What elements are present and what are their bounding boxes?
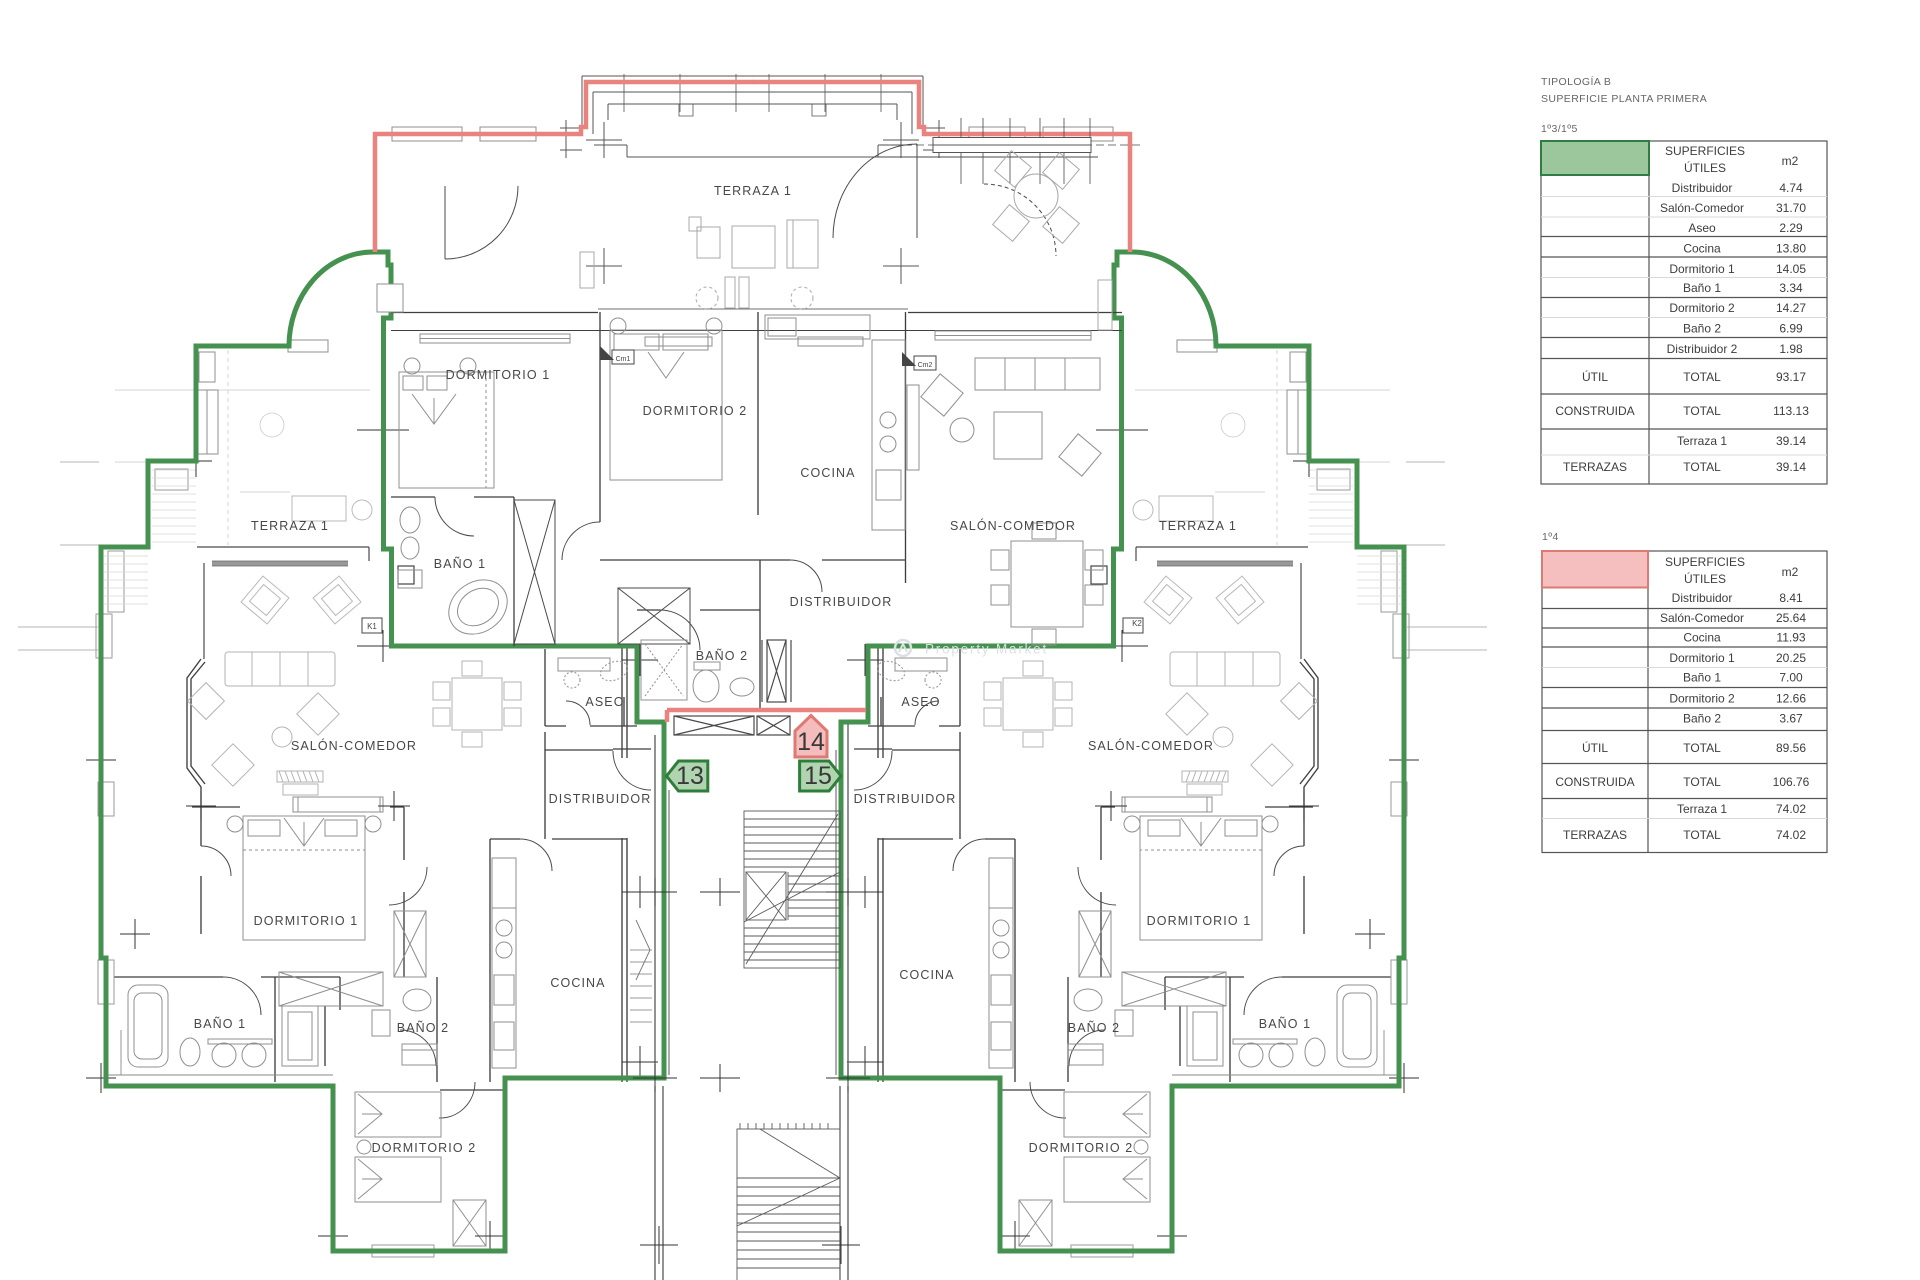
svg-text:DORMITORIO 1: DORMITORIO 1: [254, 914, 359, 928]
svg-text:ASEO: ASEO: [585, 695, 624, 709]
svg-text:SUPERFICIES: SUPERFICIES: [1665, 555, 1745, 569]
svg-text:20.25: 20.25: [1776, 651, 1806, 665]
svg-text:Dormitorio 1: Dormitorio 1: [1669, 262, 1735, 276]
svg-text:Distribuidor: Distribuidor: [1672, 591, 1733, 605]
svg-text:TERRAZA 1: TERRAZA 1: [251, 519, 329, 533]
svg-text:TOTAL: TOTAL: [1683, 460, 1721, 474]
svg-text:Property Market: Property Market: [925, 642, 1048, 657]
svg-text:DORMITORIO 2: DORMITORIO 2: [1029, 1141, 1134, 1155]
svg-text:7.00: 7.00: [1779, 671, 1803, 685]
svg-text:COCINA: COCINA: [800, 466, 855, 480]
svg-text:BAÑO 1: BAÑO 1: [194, 1017, 246, 1031]
svg-text:3.67: 3.67: [1779, 712, 1803, 726]
svg-text:Aseo: Aseo: [1688, 221, 1716, 235]
svg-text:Baño 2: Baño 2: [1683, 712, 1721, 726]
svg-text:DORMITORIO 1: DORMITORIO 1: [446, 368, 551, 382]
svg-text:SALÓN-COMEDOR: SALÓN-COMEDOR: [1088, 738, 1214, 753]
svg-text:SALÓN-COMEDOR: SALÓN-COMEDOR: [950, 518, 1076, 533]
svg-text:3.34: 3.34: [1779, 281, 1803, 295]
svg-text:Cm1: Cm1: [616, 356, 631, 363]
svg-text:DISTRIBUIDOR: DISTRIBUIDOR: [854, 792, 957, 806]
svg-text:TOTAL: TOTAL: [1683, 775, 1721, 789]
svg-text:25.64: 25.64: [1776, 611, 1806, 625]
svg-text:DORMITORIO 1: DORMITORIO 1: [1147, 914, 1252, 928]
svg-text:BAÑO 1: BAÑO 1: [1259, 1017, 1311, 1031]
svg-text:ÚTILES: ÚTILES: [1684, 160, 1726, 175]
svg-text:14.27: 14.27: [1776, 301, 1806, 315]
svg-text:2.29: 2.29: [1779, 221, 1803, 235]
svg-text:1.98: 1.98: [1779, 342, 1803, 356]
svg-text:Distribuidor 2: Distribuidor 2: [1667, 342, 1738, 356]
svg-text:Dormitorio 2: Dormitorio 2: [1669, 301, 1735, 315]
svg-text:CONSTRUIDA: CONSTRUIDA: [1555, 775, 1634, 789]
svg-text:TIPOLOGÍA B: TIPOLOGÍA B: [1541, 75, 1611, 88]
svg-text:Distribuidor: Distribuidor: [1672, 181, 1733, 195]
svg-text:TOTAL: TOTAL: [1683, 370, 1721, 384]
svg-text:TOTAL: TOTAL: [1683, 741, 1721, 755]
svg-text:DISTRIBUIDOR: DISTRIBUIDOR: [549, 792, 652, 806]
svg-text:Baño 2: Baño 2: [1683, 322, 1721, 336]
svg-text:89.56: 89.56: [1776, 741, 1806, 755]
svg-text:106.76: 106.76: [1773, 775, 1810, 789]
svg-text:ÚTILES: ÚTILES: [1684, 571, 1726, 586]
svg-text:SUPERFICIES: SUPERFICIES: [1665, 144, 1745, 158]
svg-text:39.14: 39.14: [1776, 460, 1806, 474]
svg-text:ÚTIL: ÚTIL: [1582, 740, 1608, 755]
svg-text:Salón-Comedor: Salón-Comedor: [1660, 201, 1744, 215]
svg-text:Cocina: Cocina: [1683, 242, 1721, 256]
svg-text:TERRAZA 1: TERRAZA 1: [1159, 519, 1237, 533]
svg-text:m2: m2: [1782, 154, 1799, 168]
svg-text:Baño 1: Baño 1: [1683, 281, 1721, 295]
svg-text:8.41: 8.41: [1779, 591, 1803, 605]
svg-text:1º4: 1º4: [1542, 531, 1559, 543]
svg-text:BAÑO 2: BAÑO 2: [696, 649, 748, 663]
svg-text:Terraza 1: Terraza 1: [1677, 434, 1727, 448]
svg-text:K1: K1: [367, 622, 377, 631]
svg-text:39.14: 39.14: [1776, 434, 1806, 448]
svg-text:Terraza 1: Terraza 1: [1677, 802, 1727, 816]
svg-text:14: 14: [797, 728, 825, 756]
svg-text:COCINA: COCINA: [550, 976, 605, 990]
svg-text:DORMITORIO 2: DORMITORIO 2: [372, 1141, 477, 1155]
svg-text:15: 15: [804, 762, 832, 790]
svg-text:4.74: 4.74: [1779, 181, 1803, 195]
svg-text:BAÑO 2: BAÑO 2: [1068, 1021, 1120, 1035]
svg-text:K2: K2: [1132, 619, 1142, 628]
svg-text:Dormitorio 1: Dormitorio 1: [1669, 651, 1735, 665]
svg-text:Cm2: Cm2: [918, 362, 933, 369]
svg-text:BAÑO 1: BAÑO 1: [434, 557, 486, 571]
svg-text:CONSTRUIDA: CONSTRUIDA: [1555, 404, 1634, 418]
svg-text:TOTAL: TOTAL: [1683, 404, 1721, 418]
svg-text:93.17: 93.17: [1776, 370, 1806, 384]
svg-text:SALÓN-COMEDOR: SALÓN-COMEDOR: [291, 738, 417, 753]
svg-text:113.13: 113.13: [1773, 404, 1809, 418]
svg-text:Baño 1: Baño 1: [1683, 671, 1721, 685]
svg-text:31.70: 31.70: [1776, 201, 1806, 215]
svg-text:m2: m2: [1782, 565, 1799, 579]
svg-text:TOTAL: TOTAL: [1683, 828, 1721, 842]
svg-text:1º3/1º5: 1º3/1º5: [1541, 123, 1578, 135]
svg-text:74.02: 74.02: [1776, 802, 1806, 816]
svg-text:DORMITORIO 2: DORMITORIO 2: [643, 404, 748, 418]
svg-text:Salón-Comedor: Salón-Comedor: [1660, 611, 1744, 625]
svg-text:14.05: 14.05: [1776, 262, 1806, 276]
svg-text:12.66: 12.66: [1776, 692, 1806, 706]
svg-text:11.93: 11.93: [1776, 631, 1805, 645]
svg-text:TERRAZAS: TERRAZAS: [1563, 460, 1627, 474]
svg-text:ASEO: ASEO: [901, 695, 940, 709]
svg-text:BAÑO 2: BAÑO 2: [397, 1021, 449, 1035]
svg-text:TERRAZAS: TERRAZAS: [1563, 828, 1627, 842]
svg-text:DISTRIBUIDOR: DISTRIBUIDOR: [790, 595, 893, 609]
svg-text:Cocina: Cocina: [1683, 631, 1721, 645]
svg-text:13.80: 13.80: [1776, 242, 1806, 256]
svg-text:Dormitorio 2: Dormitorio 2: [1669, 692, 1735, 706]
svg-text:74.02: 74.02: [1776, 828, 1806, 842]
svg-text:ÚTIL: ÚTIL: [1582, 369, 1608, 384]
svg-text:SUPERFICIE PLANTA PRIMERA: SUPERFICIE PLANTA PRIMERA: [1541, 93, 1707, 105]
svg-text:6.99: 6.99: [1779, 322, 1803, 336]
svg-text:COCINA: COCINA: [899, 968, 954, 982]
svg-text:13: 13: [676, 762, 704, 790]
svg-text:TERRAZA 1: TERRAZA 1: [714, 184, 792, 198]
